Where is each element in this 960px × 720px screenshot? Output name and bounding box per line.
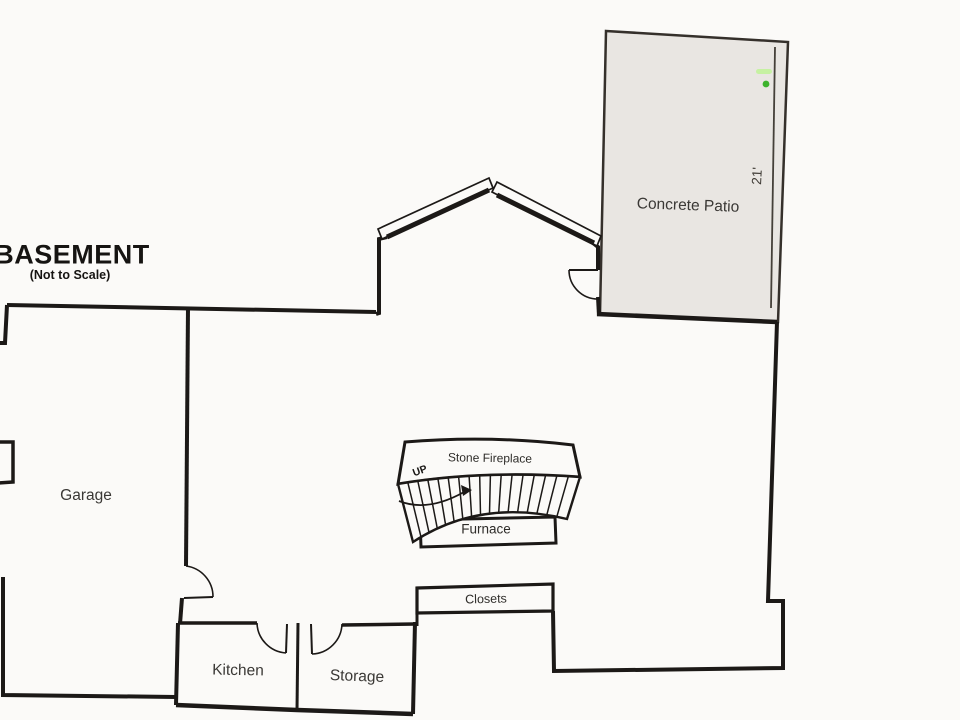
wall-left-stub — [0, 442, 13, 483]
wall-storage-right — [413, 622, 415, 714]
window-glass-left — [387, 190, 489, 237]
wall-left-notch — [0, 305, 7, 343]
stair-tread — [490, 475, 491, 513]
garage-door-leaf — [184, 597, 213, 598]
window-glass-right — [497, 195, 594, 243]
wall-kitchen-storage-divider — [297, 623, 298, 711]
floor-plan-drawing — [0, 0, 960, 720]
stair-tread — [480, 476, 481, 516]
green-marker-dot — [763, 81, 770, 88]
bay-windows — [378, 178, 601, 246]
wall-right-and-bottom — [553, 322, 783, 671]
concrete-patio-label: Concrete Patio — [636, 195, 739, 217]
floor-plan-page: { "title": { "text": "BASEMENT", "subtit… — [0, 0, 960, 720]
plan-title: BASEMENT — [0, 240, 150, 271]
wall-top — [7, 305, 376, 312]
furnace-label: Furnace — [461, 522, 511, 537]
wall-bay-step — [376, 237, 387, 314]
kitchen-door-swing-arc — [257, 623, 286, 653]
patio-dimension-label: 21' — [749, 167, 765, 185]
wall-kitchen-storage-bottom — [176, 705, 413, 714]
kitchen-door-leaf — [286, 624, 287, 653]
closets-label: Closets — [465, 591, 507, 606]
wall-kitchen-left — [176, 623, 178, 705]
storage-door-swing-arc — [312, 624, 342, 654]
wall-garage-right — [186, 307, 188, 566]
stone-fireplace-label: Stone Fireplace — [448, 450, 532, 465]
storage-label: Storage — [330, 667, 385, 687]
plan-subtitle: (Not to Scale) — [30, 268, 111, 282]
garage-door-swing-arc — [186, 566, 213, 597]
green-marker-dash — [756, 69, 772, 74]
kitchen-label: Kitchen — [212, 662, 264, 681]
wall-storage-top — [342, 624, 415, 625]
wall-garage-door-stub — [180, 598, 182, 624]
window-frame-left — [378, 178, 493, 239]
patio-door-swing-arc — [569, 270, 598, 299]
storage-door-leaf — [311, 624, 312, 654]
garage-label: Garage — [60, 487, 112, 505]
wall-left-lower-and-garage-bottom — [3, 577, 176, 697]
